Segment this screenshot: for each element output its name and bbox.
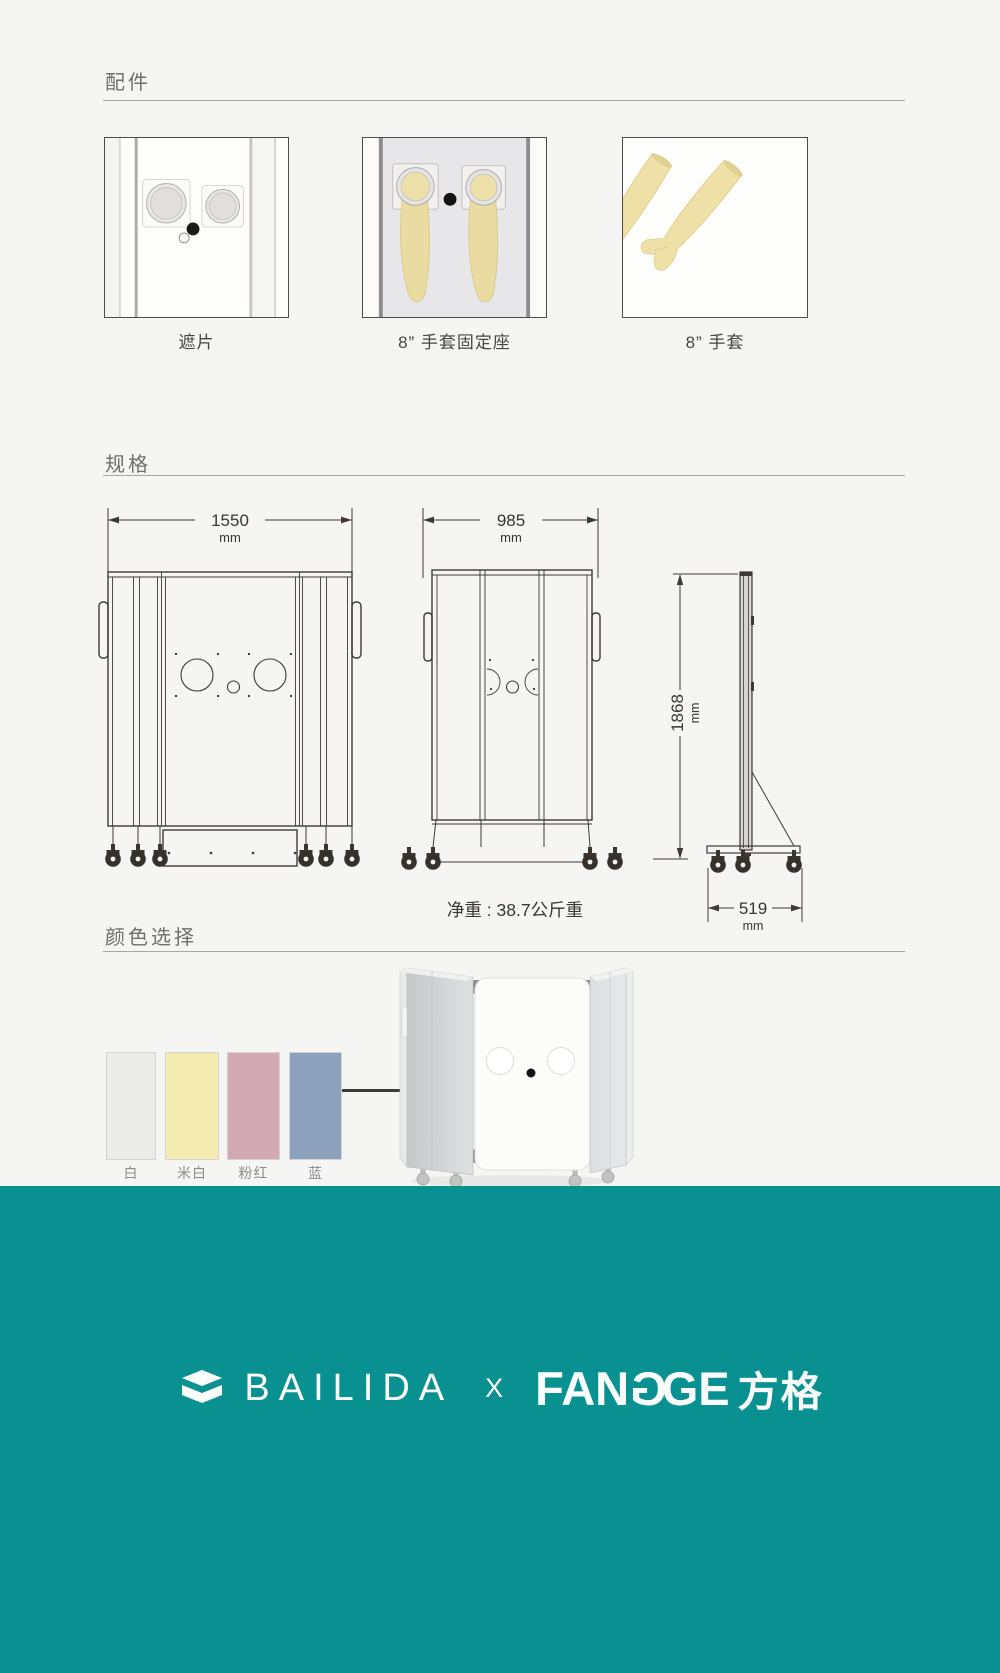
accessories-rule bbox=[103, 100, 905, 101]
net-weight-text: 净重 : 38.7公斤重 bbox=[447, 900, 583, 920]
dim-height-value: 1868 bbox=[668, 694, 687, 732]
dim-folded-width-unit: mm bbox=[500, 530, 522, 545]
fangge-logo: FANGGE 方格 bbox=[535, 1358, 823, 1418]
fangge-mirrored-g: G bbox=[630, 1361, 667, 1416]
color-selection-title: 颜色选择 bbox=[105, 921, 197, 950]
dim-height-unit: mm bbox=[688, 703, 702, 724]
bailida-wordmark: BAILIDA bbox=[244, 1367, 453, 1410]
fangge-cjk-wordmark: 方格 bbox=[738, 1358, 824, 1418]
swatch-label-white: 白 bbox=[106, 1163, 156, 1183]
accessories-title: 配件 bbox=[105, 66, 151, 95]
accessory-label-glove-mount: 8” 手套固定座 bbox=[362, 328, 547, 353]
swatch-pink bbox=[227, 1052, 280, 1160]
dim-depth-unit: mm bbox=[743, 919, 764, 933]
swatch-blue bbox=[289, 1052, 342, 1160]
bailida-logo: BAILIDA bbox=[176, 1365, 453, 1411]
footer: BAILIDA X FANGGE 方格 bbox=[0, 1186, 1000, 1673]
bailida-logo-icon bbox=[176, 1365, 228, 1411]
brand-separator: X bbox=[485, 1373, 503, 1404]
dim-front-width-unit: mm bbox=[219, 530, 241, 545]
accessory-image-gloves bbox=[622, 137, 808, 318]
accessory-image-cover-plate bbox=[104, 137, 289, 318]
dim-depth-value: 519 bbox=[739, 899, 767, 918]
catalog-page: 配件 遮片 bbox=[0, 0, 1000, 1673]
accessory-label-cover-plate: 遮片 bbox=[104, 328, 289, 353]
brand-logo-row: BAILIDA X FANGGE 方格 bbox=[0, 1358, 1000, 1418]
accessory-label-gloves: 8” 手套 bbox=[622, 328, 808, 353]
swatch-offwhite bbox=[165, 1052, 219, 1160]
accessory-image-glove-mount bbox=[362, 137, 547, 318]
swatch-label-blue: 蓝 bbox=[289, 1163, 342, 1183]
swatch-label-offwhite: 米白 bbox=[165, 1163, 219, 1183]
color-selection-rule bbox=[103, 951, 905, 952]
booth-product-image bbox=[370, 955, 650, 1190]
swatch-label-pink: 粉红 bbox=[227, 1163, 280, 1183]
glove-mount-illustration bbox=[363, 138, 546, 317]
fangge-wordmark: FANGGE bbox=[535, 1361, 729, 1416]
dim-front-width-value: 1550 bbox=[211, 511, 249, 530]
cover-plate-illustration bbox=[105, 138, 288, 317]
technical-drawings: 1550 mm bbox=[90, 470, 950, 940]
swatch-white bbox=[106, 1052, 156, 1160]
dim-folded-width-value: 985 bbox=[497, 511, 525, 530]
gloves-illustration bbox=[623, 138, 807, 317]
